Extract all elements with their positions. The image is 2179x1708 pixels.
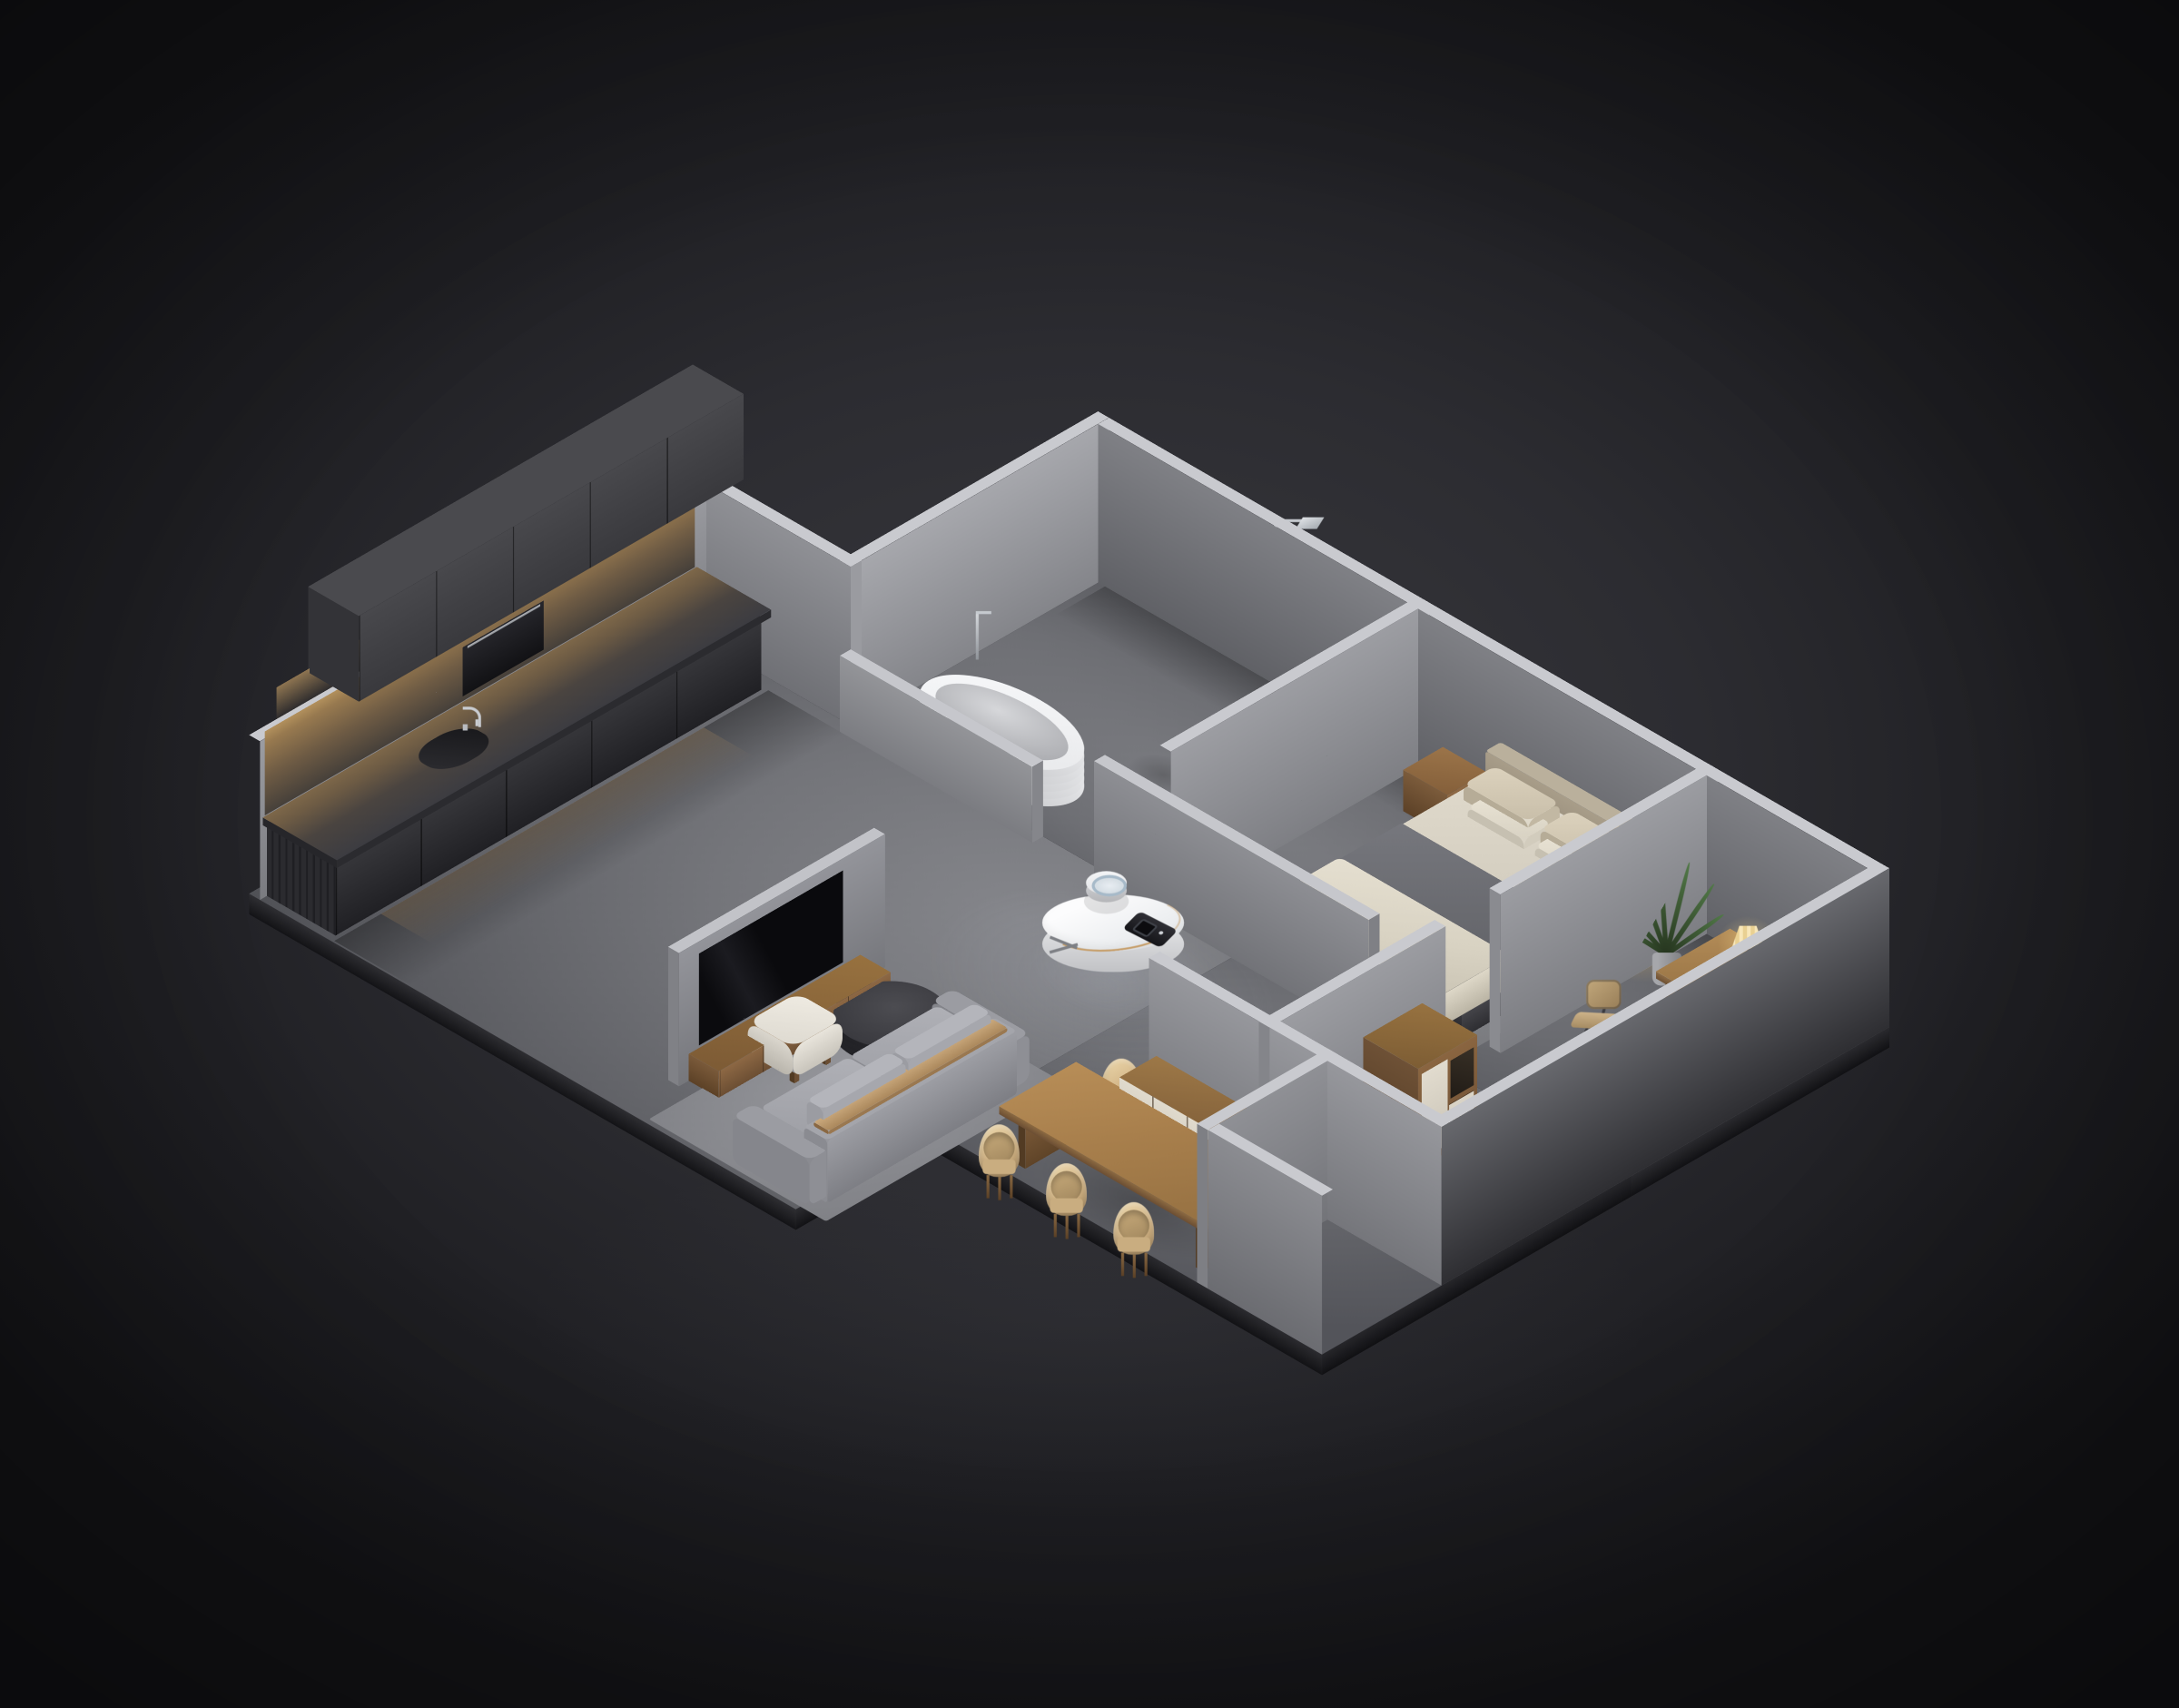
chair-leg xyxy=(1077,1214,1080,1238)
lidar-ring xyxy=(1092,875,1128,897)
chair-leg xyxy=(1010,1175,1012,1199)
wall-bathtub-half xyxy=(1032,760,1043,843)
chair-seat xyxy=(1050,1199,1082,1213)
wall-dining-stub xyxy=(1197,1124,1208,1289)
faucet-spout xyxy=(476,719,478,726)
apartment-isometric-render: Dark isometric cutaway 3D render of an a… xyxy=(0,0,2179,1708)
faucet-riser xyxy=(976,611,979,660)
chair-leg xyxy=(1066,1216,1069,1239)
camera-lens-icon xyxy=(1131,918,1159,937)
chair-backrest xyxy=(1586,980,1622,1009)
chair-leg xyxy=(1054,1214,1057,1238)
chair-seat xyxy=(982,1160,1015,1174)
chair-leg xyxy=(1145,1253,1148,1277)
camera-led-icon xyxy=(1158,931,1164,935)
chair-leg xyxy=(1133,1255,1136,1279)
chair-leg xyxy=(998,1177,1001,1200)
wall-office-west-north xyxy=(1490,888,1501,1053)
chair-leg xyxy=(987,1175,990,1199)
chair-leg xyxy=(1121,1253,1124,1277)
chair-seat xyxy=(1118,1237,1150,1251)
wall-tv xyxy=(668,947,679,1087)
faucet-spout xyxy=(976,611,991,614)
